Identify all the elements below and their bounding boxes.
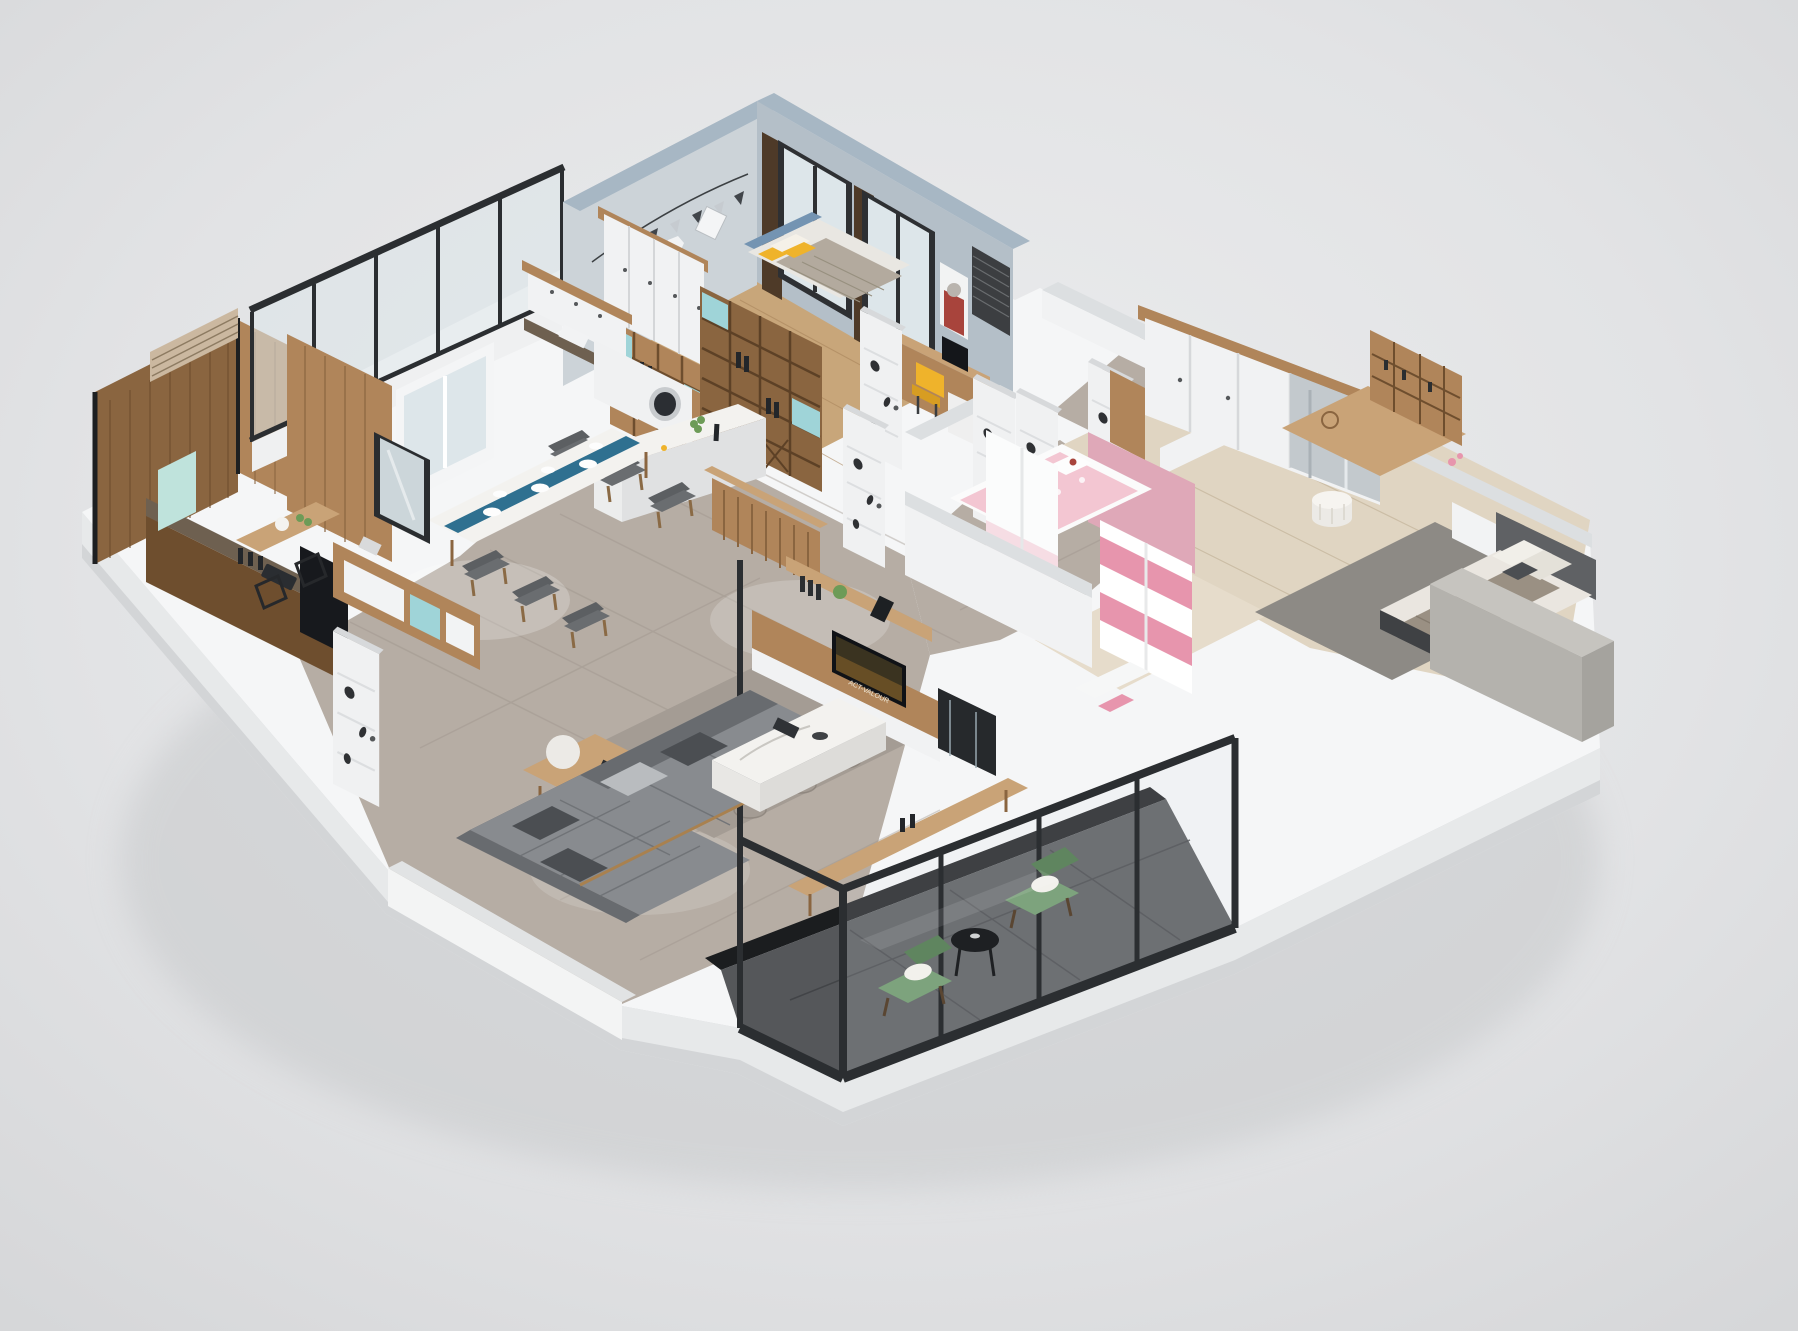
globe-lamp — [546, 735, 580, 769]
hall-door-2 — [843, 404, 889, 568]
bowl — [812, 732, 828, 740]
plant — [833, 585, 847, 599]
pouf — [1312, 491, 1352, 527]
entry-door — [333, 627, 384, 807]
isometric-scene: ACT-VALOUR — [0, 0, 1798, 1331]
apartment-render: ACT-VALOUR — [0, 0, 1798, 1331]
flower-vase — [1448, 458, 1456, 466]
